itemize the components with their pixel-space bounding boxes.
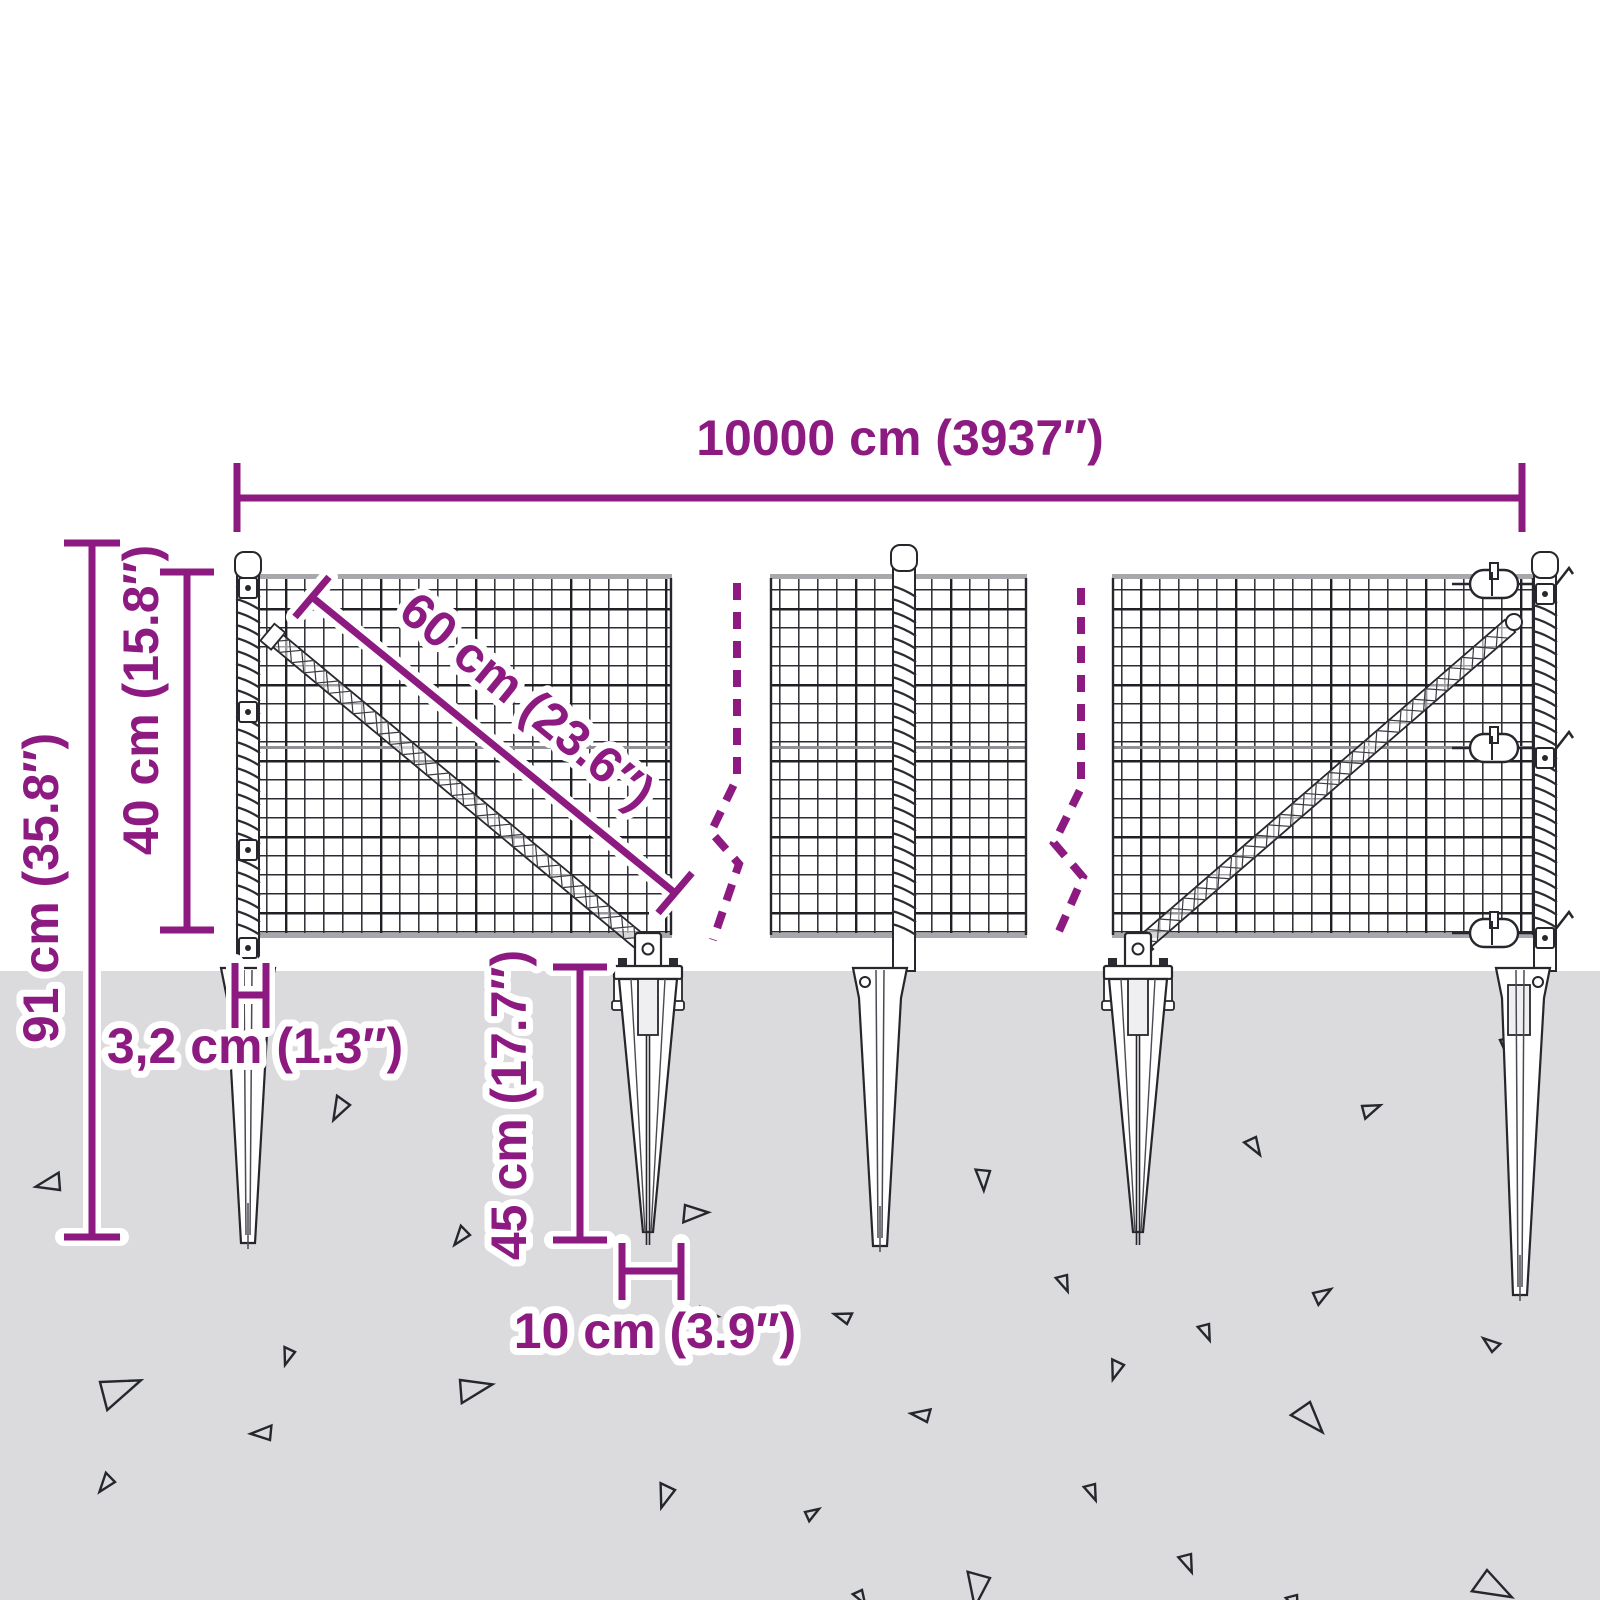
- clip-screw: [245, 709, 251, 715]
- spike-plate: [1104, 966, 1172, 979]
- label-post-width: 3,2 cm (1.3″): [107, 1018, 403, 1074]
- label-spike-width: 10 cm (3.9″): [514, 1303, 796, 1359]
- mesh-wires: [1112, 578, 1534, 935]
- clip-screw: [1542, 935, 1548, 941]
- spike-hole: [860, 977, 870, 987]
- clip-hook: [1555, 912, 1573, 930]
- bracket-hole: [643, 944, 654, 955]
- break-mark-right: [1054, 588, 1083, 938]
- fence-post-1: [235, 552, 261, 971]
- label-total-width: 10000 cm (3937″): [696, 410, 1104, 466]
- brace-eye: [1506, 614, 1522, 630]
- label-mesh-height: 40 cm (15.8″): [113, 545, 169, 855]
- mesh-panel-3: [1112, 574, 1534, 938]
- spike-hole: [1533, 977, 1543, 987]
- spike-sleeve: [1508, 985, 1530, 1035]
- bracket-hole: [1133, 944, 1144, 955]
- fence-post-3: [1532, 552, 1573, 971]
- clip-screw: [1542, 755, 1548, 761]
- label-total-height: 91 cm (35.8″): [13, 733, 69, 1043]
- spike-sleeve: [1128, 979, 1148, 1035]
- post-cap: [891, 545, 917, 571]
- fence-post-2: [891, 545, 917, 971]
- label-spike-depth: 45 cm (17.7″): [481, 950, 537, 1260]
- clip-screw: [245, 847, 251, 853]
- clip-screw: [245, 945, 251, 951]
- diagram-stage: 10000 cm (3937″) 91 cm (35.8″) 40 cm (15…: [0, 0, 1600, 1600]
- mesh-bottom-rail: [240, 933, 672, 938]
- clip-screw: [1542, 591, 1548, 597]
- fence-dimensions-diagram: 10000 cm (3937″) 91 cm (35.8″) 40 cm (15…: [0, 0, 1600, 1600]
- clip-screw: [245, 585, 251, 591]
- spike-sleeve: [638, 979, 658, 1035]
- dim-total-width: [237, 463, 1522, 532]
- clip-hook: [1555, 732, 1573, 750]
- post-cap: [235, 552, 261, 578]
- post-cap: [1532, 552, 1558, 578]
- mesh-top-rail: [240, 574, 672, 579]
- post-body: [893, 563, 915, 971]
- spike-plate: [614, 966, 682, 979]
- break-mark-left: [711, 583, 739, 940]
